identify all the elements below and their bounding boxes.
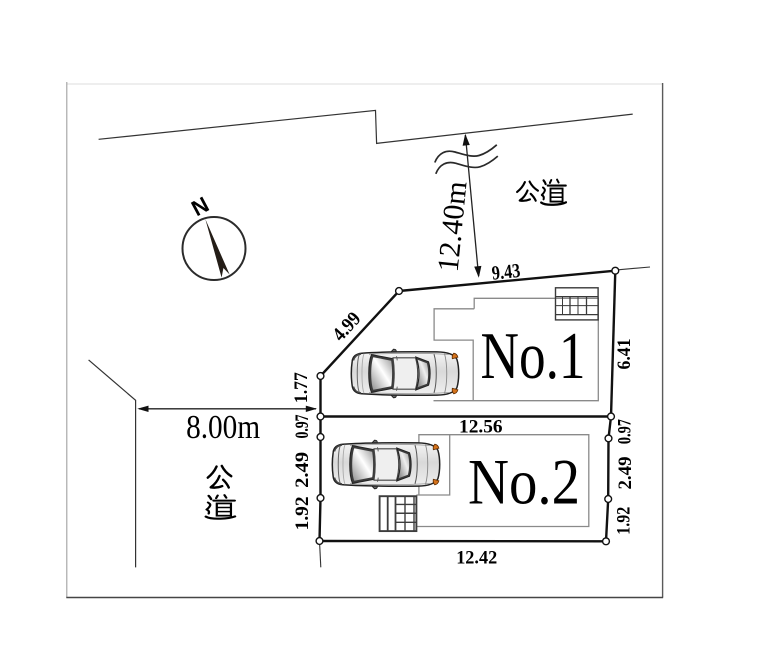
svg-text:12.42: 12.42 <box>456 547 497 568</box>
svg-text:No.1: No.1 <box>481 319 586 393</box>
svg-text:8.00m: 8.00m <box>186 409 260 446</box>
svg-text:1.92: 1.92 <box>614 507 635 535</box>
svg-text:2.49: 2.49 <box>292 452 313 488</box>
svg-text:2.49: 2.49 <box>615 457 636 490</box>
svg-text:12.56: 12.56 <box>459 417 503 438</box>
svg-text:0.97: 0.97 <box>614 419 635 444</box>
svg-text:0.97: 0.97 <box>292 414 313 438</box>
svg-text:No.2: No.2 <box>468 447 580 519</box>
svg-text:9.43: 9.43 <box>491 260 522 285</box>
svg-text:1.77: 1.77 <box>291 372 312 403</box>
svg-text:1.92: 1.92 <box>292 496 313 530</box>
svg-text:6.41: 6.41 <box>614 339 635 370</box>
